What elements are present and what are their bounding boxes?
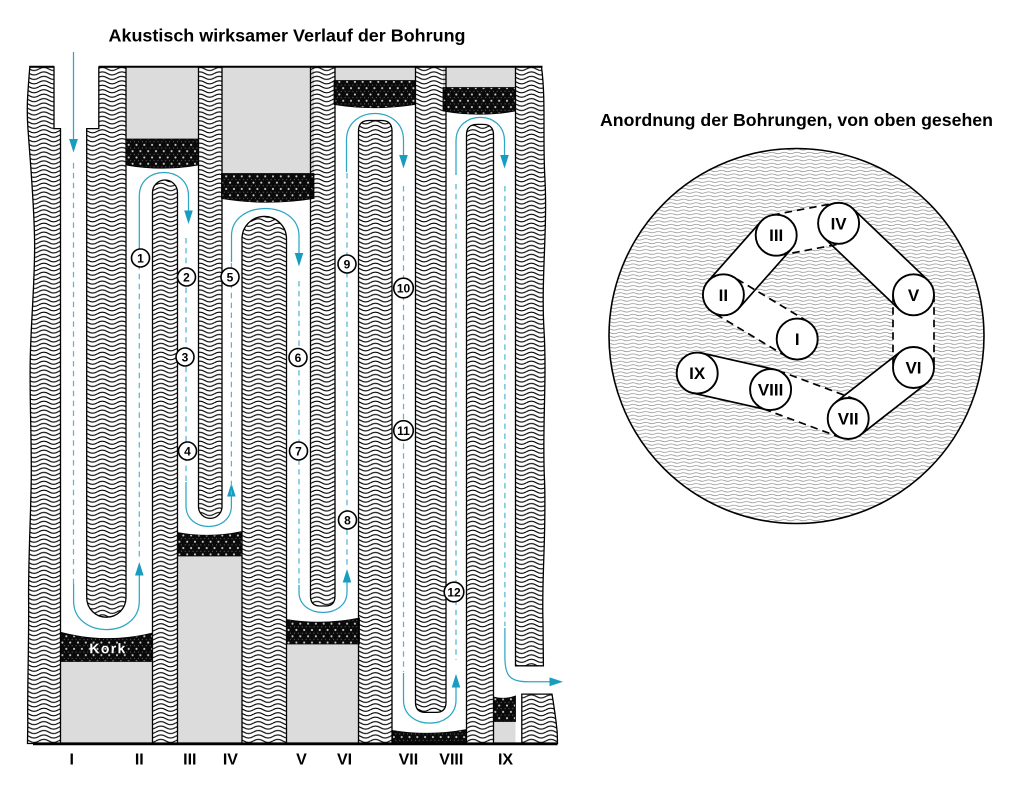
svg-text:VII: VII (399, 752, 419, 769)
svg-text:Akustisch wirksamer Verlauf de: Akustisch wirksamer Verlauf der Bohrung (109, 26, 466, 46)
svg-text:VI: VI (337, 752, 352, 769)
svg-text:2: 2 (183, 270, 190, 284)
svg-text:9: 9 (344, 257, 351, 271)
svg-text:IV: IV (223, 752, 238, 769)
svg-text:V: V (908, 286, 920, 305)
svg-text:II: II (719, 286, 728, 305)
svg-text:7: 7 (295, 444, 302, 458)
svg-text:VIII: VIII (439, 752, 463, 769)
svg-text:IV: IV (831, 214, 848, 233)
svg-text:6: 6 (295, 351, 302, 365)
svg-text:8: 8 (344, 513, 351, 527)
svg-text:III: III (183, 752, 196, 769)
svg-text:IX: IX (498, 752, 513, 769)
svg-text:3: 3 (182, 350, 189, 364)
svg-text:Kork: Kork (89, 640, 126, 656)
svg-text:IX: IX (689, 364, 706, 383)
svg-text:V: V (296, 752, 307, 769)
svg-text:III: III (769, 226, 783, 245)
svg-text:4: 4 (184, 444, 191, 458)
svg-text:VI: VI (905, 359, 921, 378)
svg-text:I: I (69, 752, 73, 769)
svg-text:VII: VII (838, 410, 859, 429)
svg-text:12: 12 (447, 585, 461, 599)
svg-text:Anordnung der Bohrungen, von o: Anordnung der Bohrungen, von oben gesehe… (600, 110, 993, 130)
svg-text:I: I (795, 330, 800, 349)
svg-text:10: 10 (397, 281, 411, 295)
svg-text:5: 5 (227, 270, 234, 284)
svg-text:II: II (135, 752, 144, 769)
svg-text:11: 11 (397, 424, 410, 438)
svg-text:VIII: VIII (758, 381, 784, 400)
svg-text:1: 1 (137, 251, 144, 265)
